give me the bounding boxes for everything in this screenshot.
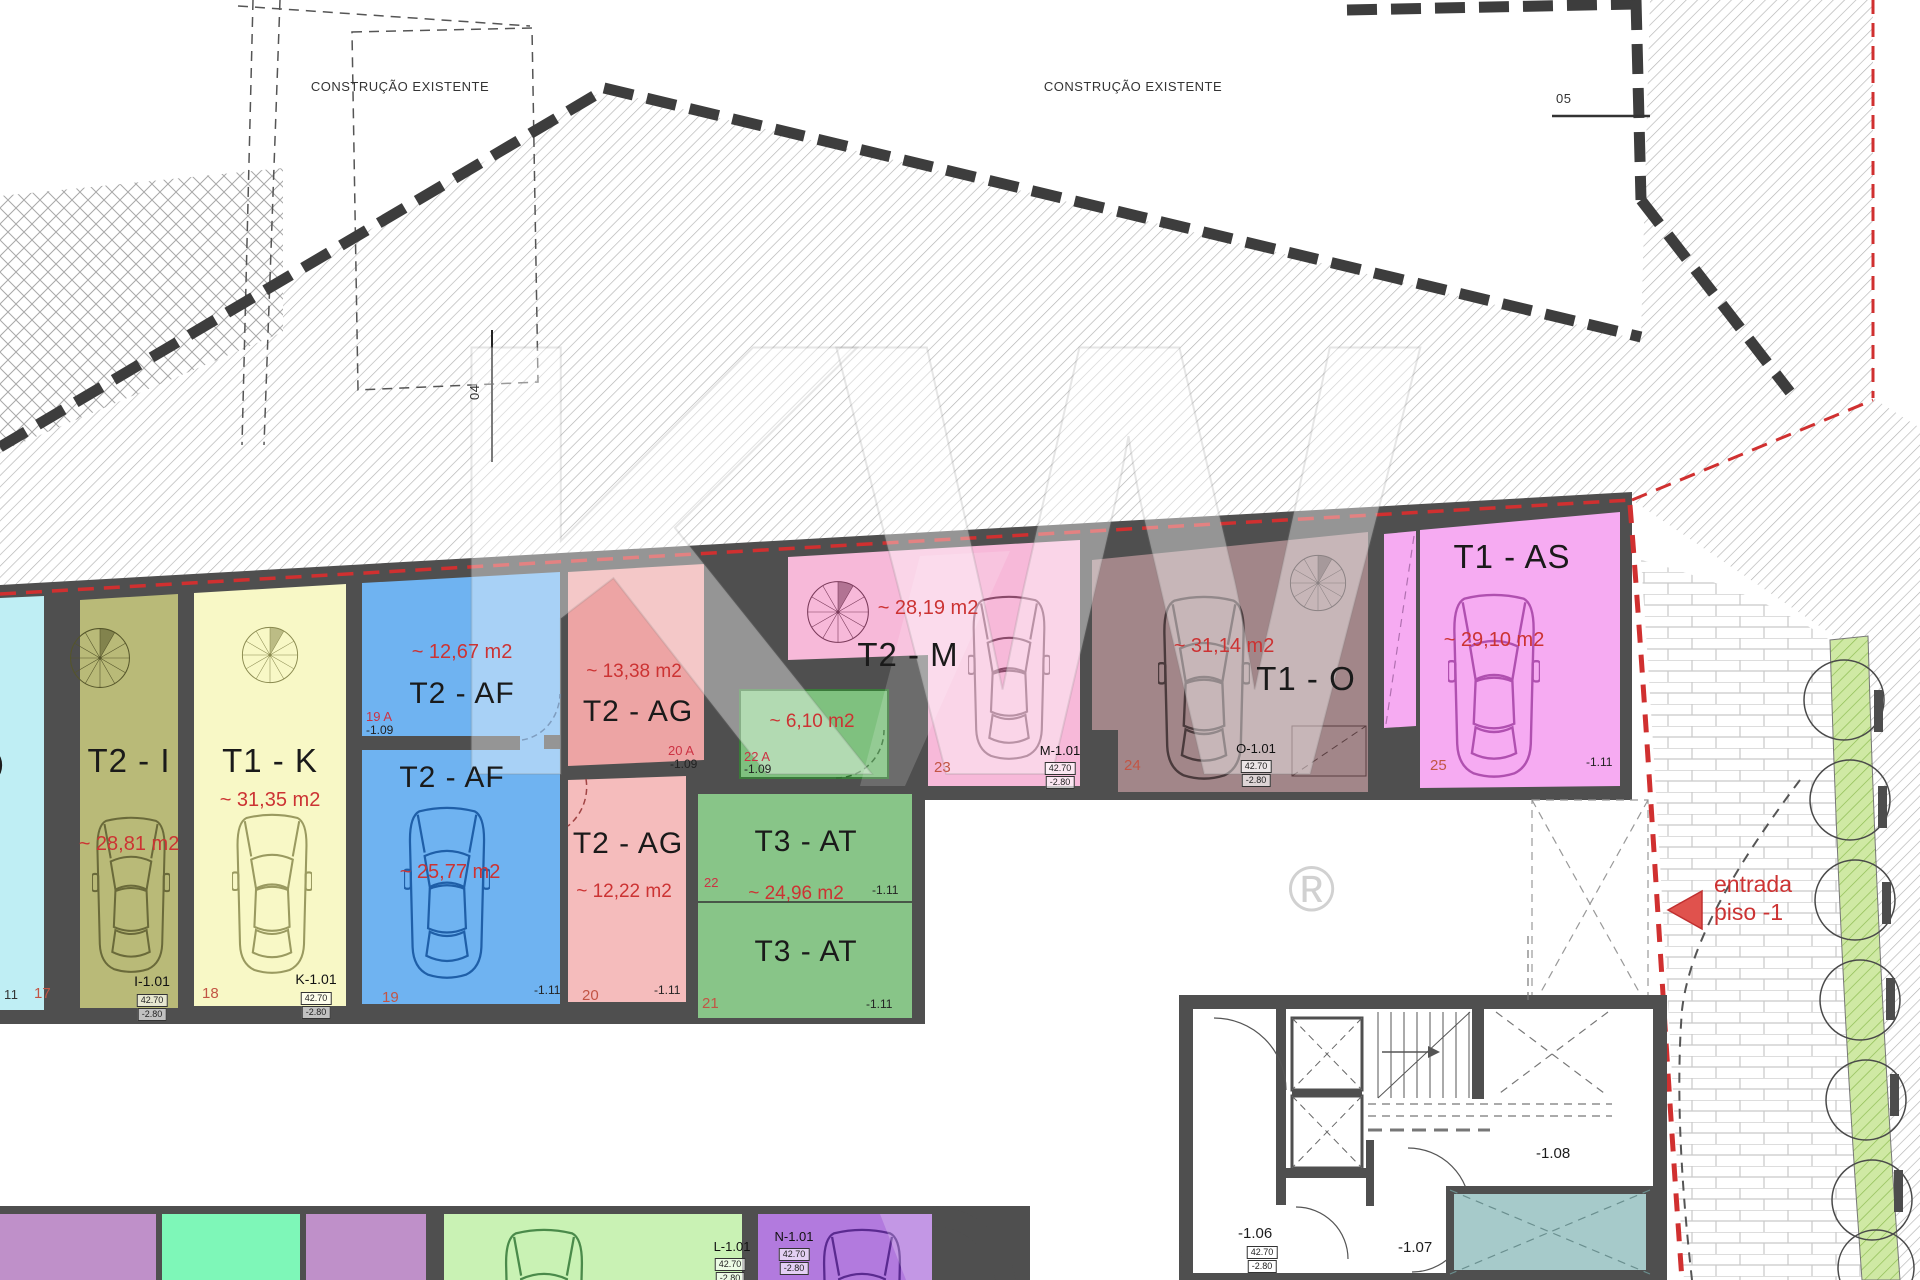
- unit-t2ag-lower-label: T2 - AG: [573, 828, 683, 860]
- unit-code: L-1.01: [714, 1240, 751, 1254]
- stall-number: 20: [582, 988, 599, 1004]
- room-number: 20 A: [668, 744, 694, 758]
- floor-plan: KW ® CONSTRUÇÃO EXISTENTE CONSTRUÇÃO EXI…: [0, 0, 1920, 1280]
- existing-construction-label: CONSTRUÇÃO EXISTENTE: [1044, 80, 1222, 94]
- stall-number: 22: [704, 876, 718, 890]
- unit-t2ag-lower-area-label: ~ 12,22 m2: [576, 882, 672, 902]
- floor-level: -1.09: [670, 758, 697, 771]
- floor-level: -1.11: [534, 984, 560, 997]
- unit-t1as-area-label: ~ 29,10 m2: [1444, 630, 1545, 651]
- floor-level: -1.11: [654, 984, 680, 997]
- entrance-label-line2: piso -1: [1714, 900, 1783, 924]
- unit-code: N-1.01: [774, 1230, 813, 1244]
- unit-t2af-lower-label: T2 - AF: [399, 762, 504, 794]
- unit-code: K-1.01: [295, 972, 336, 987]
- level-box-upper: 42.70: [1045, 762, 1076, 775]
- level-box-upper: 42.70: [1241, 760, 1272, 773]
- section-marker-04: 04: [468, 385, 482, 400]
- stall-number: 19: [382, 990, 399, 1006]
- level-box-lower: -2.80: [1242, 774, 1271, 787]
- unit-t2m-area-label: ~ 28,19 m2: [878, 598, 979, 619]
- unit-t2ag-upper-label: T2 - AG: [583, 696, 693, 728]
- section-marker-05: 05: [1556, 92, 1571, 106]
- unit-code: M-1.01: [1040, 744, 1080, 758]
- stall-number: 21: [702, 996, 719, 1012]
- floor-level: -1.09: [366, 724, 393, 737]
- entrance-label-line1: entrada: [1714, 872, 1792, 896]
- annotation-layer: CONSTRUÇÃO EXISTENTE CONSTRUÇÃO EXISTENT…: [0, 0, 1920, 1280]
- unit-code: I-1.01: [134, 974, 170, 989]
- level-box-lower: -2.80: [780, 1262, 809, 1275]
- unit-t1as-label: T1 - AS: [1453, 540, 1570, 575]
- level-box-lower: -2.80: [1046, 776, 1075, 789]
- level-box-lower: -2.80: [716, 1272, 745, 1280]
- unit-t3at-upper-label: T3 - AT: [754, 826, 857, 858]
- floor-level: -1.11: [872, 884, 898, 897]
- unit-t2ag-upper-area-label: ~ 13,38 m2: [586, 662, 682, 682]
- unit-t3at-lower-label: T3 - AT: [754, 936, 857, 968]
- level-box-upper: 42.70: [137, 994, 168, 1007]
- unit-t1k-area-label: ~ 31,35 m2: [220, 790, 321, 811]
- level-box-lower: -2.80: [138, 1008, 167, 1021]
- level-box-upper: 42.70: [1247, 1246, 1278, 1259]
- unit-t2af-upper-area-label: ~ 12,67 m2: [412, 642, 513, 663]
- floor-level: -1.11: [866, 998, 892, 1011]
- unit-t2i-label: T2 - I: [87, 744, 170, 779]
- stall-number: 24: [1124, 758, 1141, 774]
- clipped-unit-label: ): [0, 748, 4, 780]
- core-level-106: -1.06: [1238, 1226, 1272, 1242]
- unit-t1k-label: T1 - K: [222, 744, 318, 779]
- level-box-lower: -2.80: [302, 1006, 331, 1019]
- unit-t1o-label: T1 - O: [1256, 662, 1356, 697]
- unit-t3at-area-label: ~ 24,96 m2: [748, 884, 844, 904]
- stall-number: 23: [934, 760, 951, 776]
- stall-number: 25: [1430, 758, 1447, 774]
- level-box-upper: 42.70: [715, 1258, 746, 1271]
- storage-area-label: ~ 6,10 m2: [769, 712, 854, 732]
- unit-code: O-1.01: [1236, 742, 1276, 756]
- core-level-108: -1.08: [1536, 1146, 1570, 1162]
- level-box-lower: -2.80: [1248, 1260, 1277, 1273]
- level-box-upper: 42.70: [779, 1248, 810, 1261]
- existing-construction-label: CONSTRUÇÃO EXISTENTE: [311, 80, 489, 94]
- floor-level: -1.11: [1586, 756, 1612, 769]
- unit-t1o-area-label: ~ 31,14 m2: [1174, 636, 1275, 657]
- unit-t2af-upper-label: T2 - AF: [409, 678, 514, 710]
- stall-number: 18: [202, 986, 219, 1002]
- room-number: 19 A: [366, 710, 392, 724]
- unit-t2i-area-label: ~ 28,81 m2: [79, 834, 180, 855]
- core-level-107: -1.07: [1398, 1240, 1432, 1256]
- floor-level: -1.09: [744, 763, 771, 776]
- unit-t2m-label: T2 - M: [857, 638, 958, 673]
- stall-number-11: 11: [4, 988, 19, 1002]
- level-box-upper: 42.70: [301, 992, 332, 1005]
- unit-t2af-lower-area-label: ~ 25,77 m2: [400, 862, 501, 883]
- stall-number: 17: [34, 986, 51, 1002]
